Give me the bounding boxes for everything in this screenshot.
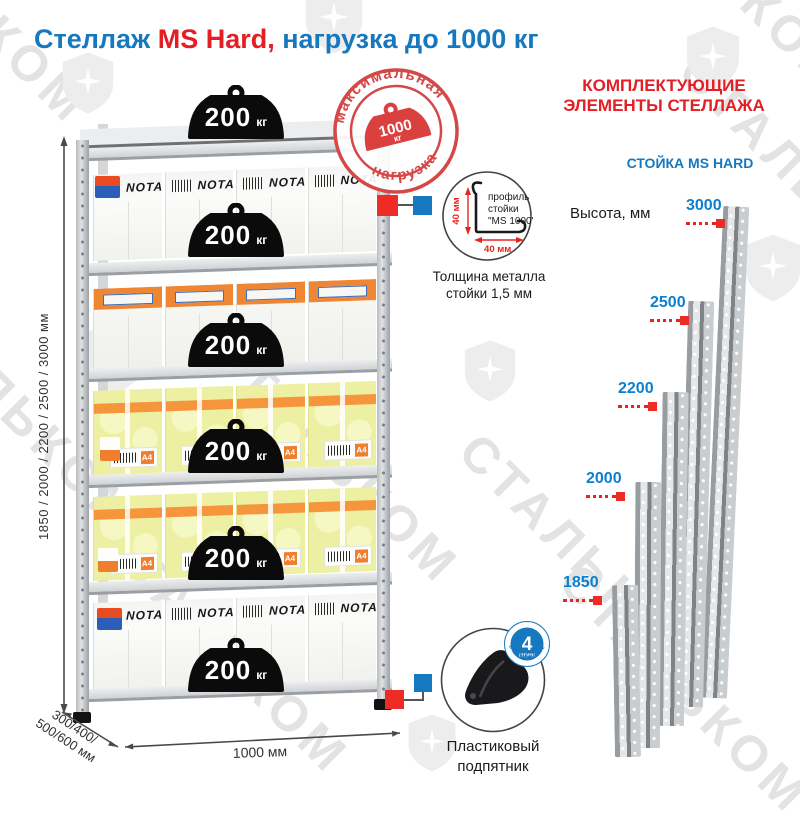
height-dimension-line [56, 134, 72, 716]
weight-value: 200 [205, 330, 251, 361]
components-header: КОМПЛЕКТУЮЩИЕ ЭЛЕМЕНТЫ СТЕЛЛАЖА [544, 76, 784, 116]
height-value: 1850 [563, 574, 602, 592]
box-brand-label: NOTA [126, 179, 162, 194]
quantity-badge: 4 штуки в комплекте [503, 620, 551, 668]
barcode [243, 177, 263, 190]
weight-unit: кг [256, 233, 267, 247]
barcode [328, 551, 352, 562]
upright-1850 [612, 585, 641, 757]
box-crease [342, 622, 343, 680]
front-right-post [377, 131, 390, 701]
height-dimension-label: 1850 / 2000 / 2200 / 2500 / 3000 мм [36, 290, 51, 540]
weight-value: 200 [205, 220, 251, 251]
blue-marker-square [413, 196, 432, 215]
box-paper-a4: A4 [308, 487, 377, 573]
height-value: 2500 [650, 294, 689, 312]
shield-watermark-icon [58, 50, 118, 116]
box-paper-a4: A4 [93, 389, 162, 475]
upright-2200 [658, 392, 689, 726]
box-crease [342, 308, 343, 360]
weight-value: 200 [205, 655, 251, 686]
barcode [328, 445, 352, 456]
weight-200kg: 200кг [177, 203, 295, 257]
dotted-leader [650, 319, 680, 322]
box-brand-label: NOTA [198, 605, 234, 620]
front-left-post [76, 140, 89, 716]
shield-watermark-icon [740, 232, 800, 304]
profile-text-line2: стойки [488, 204, 519, 215]
weight-200kg: 200кг [177, 313, 295, 367]
box-brand-label: NOTA [341, 600, 377, 615]
box-side-sticker [100, 437, 120, 461]
red-marker-square [385, 690, 404, 709]
components-header-line1: КОМПЛЕКТУЮЩИЕ [582, 76, 745, 95]
weight-unit: кг [256, 343, 267, 357]
post-profile-detail: 40 мм 40 мм. профиль стойки "MS 1000" [441, 170, 533, 262]
box-brand-label: NOTA [269, 174, 305, 189]
box-label [246, 288, 295, 301]
barcode [315, 603, 335, 616]
a4-badge: A4 [355, 549, 368, 562]
dotted-leader [686, 222, 716, 225]
red-marker-square [616, 492, 625, 501]
title-part-red: MS Hard, [158, 24, 275, 54]
weight-value: 200 [205, 436, 251, 467]
dotted-leader [563, 599, 593, 602]
title-part-blue: нагрузка до 1000 кг [275, 24, 539, 54]
box-crease [128, 202, 129, 260]
height-axis-label: Высота, мм [570, 205, 650, 222]
weight-200kg: 200кг [177, 419, 295, 473]
barcode [172, 608, 192, 621]
page-title: Стеллаж MS Hard, нагрузка до 1000 кг [34, 24, 539, 55]
red-marker-square [648, 402, 657, 411]
dotted-leader [586, 495, 616, 498]
box-side-sticker [98, 548, 118, 572]
box-a4-label: A4 [324, 545, 372, 567]
box-a4-label: A4 [324, 439, 372, 461]
red-marker-square [377, 195, 398, 216]
profile-dim-horizontal: 40 мм. [484, 244, 514, 255]
a4-badge: A4 [355, 443, 368, 456]
weight-200kg: 200кг [177, 85, 295, 139]
title-part-blue: Стеллаж [34, 24, 158, 54]
profile-text-line1: профиль [488, 191, 529, 203]
pedestal-caption-line1: Пластиковый [447, 738, 540, 755]
box-crease [128, 316, 129, 368]
pedestal-caption-line2: подпятник [457, 758, 528, 775]
box-brand-label: NOTA [126, 607, 162, 622]
shield-watermark-icon [460, 338, 520, 404]
red-marker-square [593, 596, 602, 605]
weight-unit: кг [256, 668, 267, 682]
weight-value: 200 [205, 543, 251, 574]
box-brand-label: NOTA [269, 602, 305, 617]
height-callout-3000: 3000 [686, 197, 725, 233]
box-label [103, 293, 152, 306]
height-value: 2000 [586, 470, 625, 488]
box-crease [342, 194, 343, 252]
width-dimension-label: 1000 мм [215, 742, 306, 761]
pedestal-caption: Пластиковый подпятник [413, 737, 573, 777]
height-value: 3000 [686, 197, 725, 215]
box-paper [93, 287, 162, 369]
box-paper-a4: A4 [308, 381, 377, 467]
barcode [172, 180, 192, 193]
box-brand-label: NOTA [198, 177, 234, 192]
red-marker-square [716, 219, 725, 228]
thickness-line1: Толщина металла [433, 269, 546, 284]
weight-200kg: 200кг [177, 526, 295, 580]
box-label [318, 285, 367, 298]
connector-line [404, 699, 424, 701]
height-value: 2200 [618, 380, 657, 398]
box-label [175, 290, 224, 303]
weight-unit: кг [256, 449, 267, 463]
blue-marker-square [414, 674, 432, 692]
weight-unit: кг [256, 556, 267, 570]
weight-200kg: 200кг [177, 638, 295, 692]
height-callout-2000: 2000 [586, 470, 625, 506]
box-side-sticker [95, 176, 120, 198]
barcode [243, 605, 263, 618]
height-callout-2500: 2500 [650, 294, 689, 330]
weight-unit: кг [256, 115, 267, 129]
a4-badge: A4 [141, 556, 154, 569]
barcode [315, 175, 335, 188]
profile-text-line3: "MS 1000" [488, 216, 533, 227]
thickness-line2: стойки 1,5 мм [446, 286, 532, 301]
components-header-line2: ЭЛЕМЕНТЫ СТЕЛЛАЖА [563, 96, 765, 115]
connector-line [422, 692, 424, 701]
profile-dim-vertical: 40 мм [451, 197, 462, 224]
box-nota: NOTA [308, 593, 377, 681]
a4-badge: A4 [141, 450, 154, 463]
height-callout-1850: 1850 [563, 574, 602, 610]
box-paper [308, 279, 377, 361]
box-side-sticker [97, 608, 122, 630]
weight-value: 200 [205, 102, 251, 133]
height-callout-2200: 2200 [618, 380, 657, 416]
dotted-leader [618, 405, 648, 408]
thickness-note: Толщина металла стойки 1,5 мм [409, 268, 569, 302]
red-marker-square [680, 316, 689, 325]
box-crease [128, 630, 129, 688]
stand-title: СТОЙКА MS HARD [590, 155, 790, 171]
